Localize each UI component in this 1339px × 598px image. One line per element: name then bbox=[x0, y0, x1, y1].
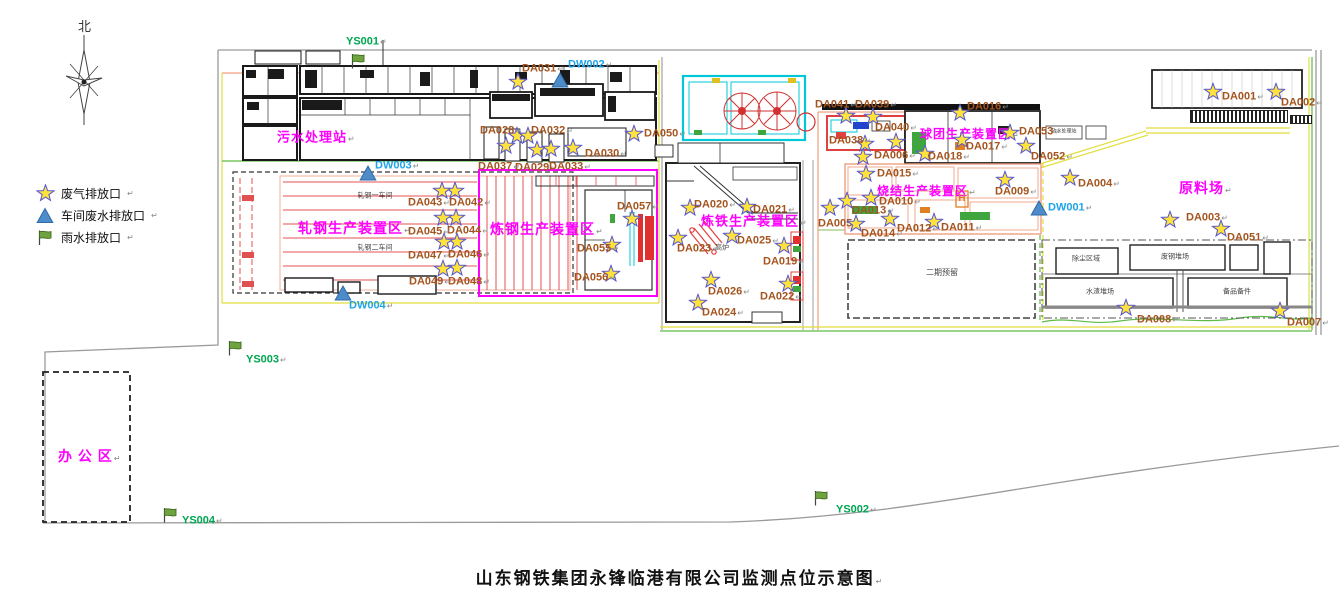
compass-rose-icon bbox=[54, 30, 114, 130]
da014-label: DA014↵ bbox=[861, 229, 903, 240]
return-mark: ↵ bbox=[896, 230, 903, 239]
return-mark: ↵ bbox=[114, 454, 122, 463]
return-mark: ↵ bbox=[443, 199, 450, 208]
da011-label: DA011↵ bbox=[941, 223, 982, 234]
return-mark: ↵ bbox=[484, 199, 491, 208]
da049-label: DA049↵ bbox=[409, 277, 451, 288]
site-base-drawing bbox=[0, 0, 1339, 598]
return-mark: ↵ bbox=[887, 207, 894, 216]
office-area bbox=[43, 372, 130, 522]
return-mark: ↵ bbox=[612, 245, 619, 254]
return-mark: ↵ bbox=[864, 137, 871, 146]
da024-label: DA024↵ bbox=[702, 308, 744, 319]
return-mark: ↵ bbox=[620, 150, 627, 159]
return-mark: ↵ bbox=[566, 127, 573, 136]
da004-star-icon bbox=[1061, 169, 1080, 188]
legend-label-rainwater: 雨水排放口 bbox=[61, 229, 121, 246]
da001-label: DA001↵ bbox=[1222, 92, 1264, 103]
ys001-label: YS001↵ bbox=[346, 37, 387, 48]
da002-label: DA002↵ bbox=[1281, 98, 1323, 109]
return-mark: ↵ bbox=[679, 130, 686, 139]
return-mark: ↵ bbox=[483, 251, 490, 260]
return-mark: ↵ bbox=[1030, 188, 1037, 197]
triangle-icon bbox=[36, 207, 56, 224]
da007-label: DA007↵ bbox=[1287, 318, 1329, 329]
return-mark: ↵ bbox=[890, 101, 897, 110]
ys002-label: YS002↵ bbox=[836, 505, 877, 516]
return-mark: ↵ bbox=[876, 577, 885, 586]
da038-label: DA038↵ bbox=[829, 136, 871, 147]
map-title: 山东钢铁集团永锋临港有限公司监测点位示意图↵ bbox=[476, 564, 885, 589]
dw002-triangle-icon bbox=[551, 72, 569, 89]
da030-label: DA030↵ bbox=[585, 149, 627, 160]
return-mark: ↵ bbox=[712, 245, 719, 254]
da023-label: DA023↵ bbox=[677, 244, 719, 255]
return-mark: ↵ bbox=[1262, 234, 1269, 243]
fan-building bbox=[655, 76, 815, 163]
return-mark: ↵ bbox=[652, 203, 659, 212]
da009-label: DA009↵ bbox=[995, 187, 1037, 198]
da041-label: DA041↵ bbox=[815, 100, 857, 111]
da050-label: DA050↵ bbox=[644, 129, 686, 140]
legend-item-wastewater: 车间废水排放口 ↵ bbox=[36, 204, 158, 226]
return-mark: ↵ bbox=[483, 278, 490, 287]
return-mark: ↵ bbox=[1002, 103, 1009, 112]
ys004-flag-icon bbox=[161, 507, 181, 524]
legend-item-rainwater: 雨水排放口 ↵ bbox=[36, 226, 158, 248]
zone-label-1: 轧钢生产装置区↵ bbox=[298, 221, 412, 235]
da033-star-icon bbox=[542, 140, 561, 159]
return-mark: ↵ bbox=[743, 288, 750, 297]
building-label-9: H bbox=[958, 194, 965, 204]
da040-star-icon bbox=[887, 133, 906, 152]
da020-label: DA020↵ bbox=[694, 200, 736, 211]
da008-star-icon bbox=[1117, 299, 1136, 318]
building-label-7: 水渣堆场 bbox=[1086, 289, 1114, 296]
dw001-triangle-icon bbox=[1030, 200, 1048, 217]
zone-label-2: 炼钢生产装置区↵ bbox=[490, 222, 604, 236]
return-mark: ↵ bbox=[870, 506, 877, 515]
da017-label: DA017↵ bbox=[966, 142, 1008, 153]
da051-label: DA051↵ bbox=[1227, 233, 1269, 244]
da012-label: DA012↵ bbox=[897, 224, 939, 235]
return-mark: ↵ bbox=[1316, 99, 1323, 108]
building-label-8: 备品备件 bbox=[1223, 289, 1251, 296]
return-mark: ↵ bbox=[1113, 180, 1120, 189]
da039-label: DA039↵ bbox=[855, 100, 897, 111]
da016-label: DA016↵ bbox=[967, 102, 1009, 113]
return-mark: ↵ bbox=[127, 233, 134, 242]
building-label-3: 二期预留 bbox=[926, 269, 958, 277]
return-mark: ↵ bbox=[444, 278, 451, 287]
return-mark: ↵ bbox=[151, 211, 158, 220]
da053-label: DA053↵ bbox=[1019, 127, 1061, 138]
ys002-flag-icon bbox=[812, 490, 832, 507]
da055-label: DA055↵ bbox=[577, 244, 619, 255]
return-mark: ↵ bbox=[482, 227, 489, 236]
da056-label: DA056↵ bbox=[574, 273, 616, 284]
da042-label: DA042↵ bbox=[449, 198, 491, 209]
return-mark: ↵ bbox=[127, 189, 134, 198]
return-mark: ↵ bbox=[912, 170, 919, 179]
return-mark: ↵ bbox=[772, 237, 779, 246]
return-mark: ↵ bbox=[348, 135, 356, 144]
da050-star-icon bbox=[625, 125, 644, 144]
return-mark: ↵ bbox=[513, 163, 520, 172]
return-mark: ↵ bbox=[1054, 128, 1061, 137]
return-mark: ↵ bbox=[413, 162, 420, 171]
map-title-text: 山东钢铁集团永锋临港有限公司监测点位示意图 bbox=[476, 569, 875, 588]
return-mark: ↵ bbox=[380, 38, 387, 47]
return-mark: ↵ bbox=[729, 201, 736, 210]
ys003-flag-icon bbox=[226, 340, 246, 357]
dw003-label: DW003↵ bbox=[375, 161, 419, 172]
da001-star-icon bbox=[1204, 83, 1223, 102]
building-label-1: 轧钢二车间 bbox=[358, 245, 393, 252]
legend-label-wastewater: 车间废水排放口 bbox=[61, 207, 145, 224]
da022-label: DA022↵ bbox=[760, 292, 802, 303]
building-label-5: 除尘区域 bbox=[1072, 256, 1100, 263]
zone-label-0: 污水处理站↵ bbox=[277, 131, 356, 144]
da015-star-icon bbox=[857, 165, 876, 184]
star-icon bbox=[36, 184, 56, 203]
building-label-0: 轧钢一车间 bbox=[358, 193, 393, 200]
da021-label: DA021↵ bbox=[753, 205, 795, 216]
return-mark: ↵ bbox=[932, 225, 939, 234]
return-mark: ↵ bbox=[788, 206, 795, 215]
da006-label: DA006↵ bbox=[874, 151, 916, 162]
ys004-label: YS004↵ bbox=[182, 516, 223, 527]
conveyor-hatch-strip bbox=[1190, 110, 1288, 123]
return-mark: ↵ bbox=[216, 517, 223, 526]
da015-label: DA015↵ bbox=[877, 169, 919, 180]
da040-label: DA040↵ bbox=[875, 123, 917, 134]
da057-label: DA057↵ bbox=[617, 202, 659, 213]
conveyor-hatch-strip-small bbox=[1290, 115, 1312, 124]
return-mark: ↵ bbox=[737, 309, 744, 318]
dw001-label: DW001↵ bbox=[1048, 203, 1092, 214]
return-mark: ↵ bbox=[910, 124, 917, 133]
return-mark: ↵ bbox=[969, 188, 977, 197]
return-mark: ↵ bbox=[800, 219, 808, 228]
return-mark: ↵ bbox=[914, 198, 921, 207]
zone-label-7: 办 公 区↵ bbox=[58, 449, 121, 463]
da008-label: DA008↵ bbox=[1137, 315, 1179, 326]
return-mark: ↵ bbox=[280, 356, 287, 365]
da028-label: DA028↵ bbox=[480, 126, 522, 137]
return-mark: ↵ bbox=[387, 302, 394, 311]
legend: 废气排放口 ↵ 车间废水排放口 ↵ 雨水排放口 ↵ bbox=[36, 182, 158, 248]
reserved-area bbox=[848, 240, 1035, 318]
da037-star-icon bbox=[497, 137, 516, 156]
da048-label: DA048↵ bbox=[448, 277, 490, 288]
return-mark: ↵ bbox=[1322, 319, 1329, 328]
ys003-label: YS003↵ bbox=[246, 355, 287, 366]
da026-label: DA026↵ bbox=[708, 287, 750, 298]
da003-star-icon bbox=[1161, 211, 1180, 230]
return-mark: ↵ bbox=[850, 101, 857, 110]
da031-star-icon bbox=[509, 73, 528, 92]
return-mark: ↵ bbox=[609, 274, 616, 283]
da033-label: DA033↵ bbox=[549, 162, 591, 173]
return-mark: ↵ bbox=[1225, 186, 1233, 195]
da037-label: DA037↵ bbox=[478, 162, 520, 173]
return-mark: ↵ bbox=[1066, 153, 1073, 162]
building-label-6: 废钢堆场 bbox=[1161, 254, 1189, 261]
return-mark: ↵ bbox=[584, 163, 591, 172]
da018-label: DA018↵ bbox=[928, 152, 970, 163]
dw002-label: DW002↵ bbox=[568, 60, 612, 71]
return-mark: ↵ bbox=[798, 258, 805, 267]
legend-label-gas: 废气排放口 bbox=[61, 185, 121, 202]
return-mark: ↵ bbox=[795, 293, 802, 302]
da030-star-icon bbox=[564, 139, 583, 158]
return-mark: ↵ bbox=[1257, 93, 1264, 102]
da052-label: DA052↵ bbox=[1031, 152, 1073, 163]
return-mark: ↵ bbox=[976, 224, 983, 233]
flag-icon bbox=[36, 229, 56, 246]
da025-label: DA025↵ bbox=[737, 236, 779, 247]
da032-label: DA032↵ bbox=[531, 126, 573, 137]
return-mark: ↵ bbox=[963, 153, 970, 162]
return-mark: ↵ bbox=[1172, 316, 1179, 325]
ys001-flag-icon bbox=[349, 53, 369, 70]
da004-label: DA004↵ bbox=[1078, 179, 1120, 190]
site-map-canvas: 北 废气排放口 ↵ 车间废水排放口 ↵ 雨水排放口 ↵ 污水处理站↵轧钢生产装置… bbox=[0, 0, 1339, 598]
da043-label: DA043↵ bbox=[408, 198, 450, 209]
da019-label: DA019↵ bbox=[763, 257, 805, 268]
da053-star-icon bbox=[1001, 124, 1020, 143]
dw004-label: DW004↵ bbox=[349, 301, 393, 312]
legend-item-gas: 废气排放口 ↵ bbox=[36, 182, 158, 204]
return-mark: ↵ bbox=[606, 61, 613, 70]
zone-label-6: 原料场↵ bbox=[1179, 181, 1233, 195]
return-mark: ↵ bbox=[1086, 204, 1093, 213]
return-mark: ↵ bbox=[1001, 143, 1008, 152]
